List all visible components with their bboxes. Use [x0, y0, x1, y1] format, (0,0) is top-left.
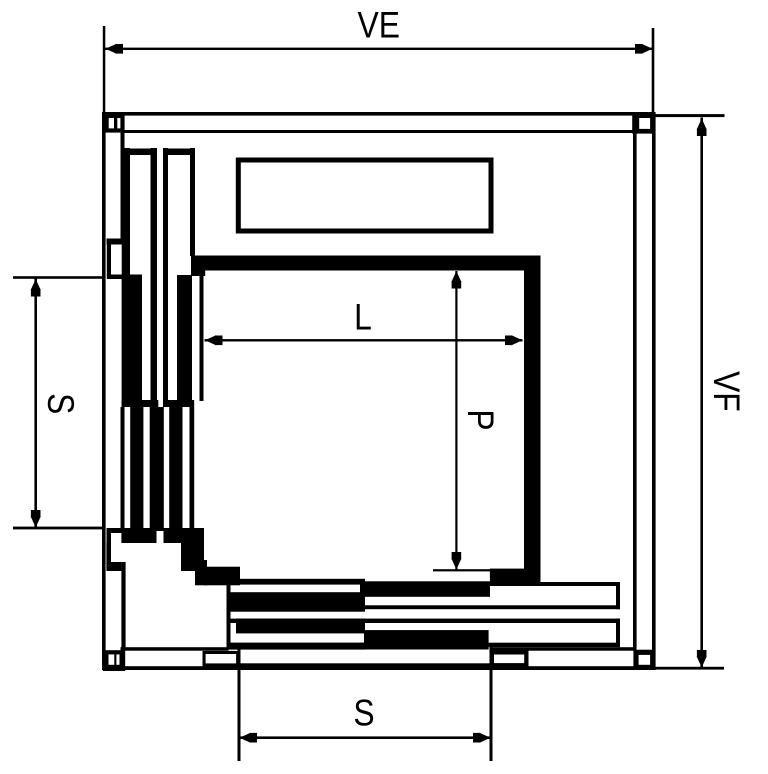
svg-text:VE: VE — [357, 5, 399, 46]
svg-text:VF: VF — [705, 371, 746, 412]
svg-text:S: S — [39, 393, 80, 414]
svg-text:S: S — [353, 693, 374, 734]
svg-text:L: L — [354, 297, 372, 338]
svg-text:P: P — [459, 409, 500, 430]
